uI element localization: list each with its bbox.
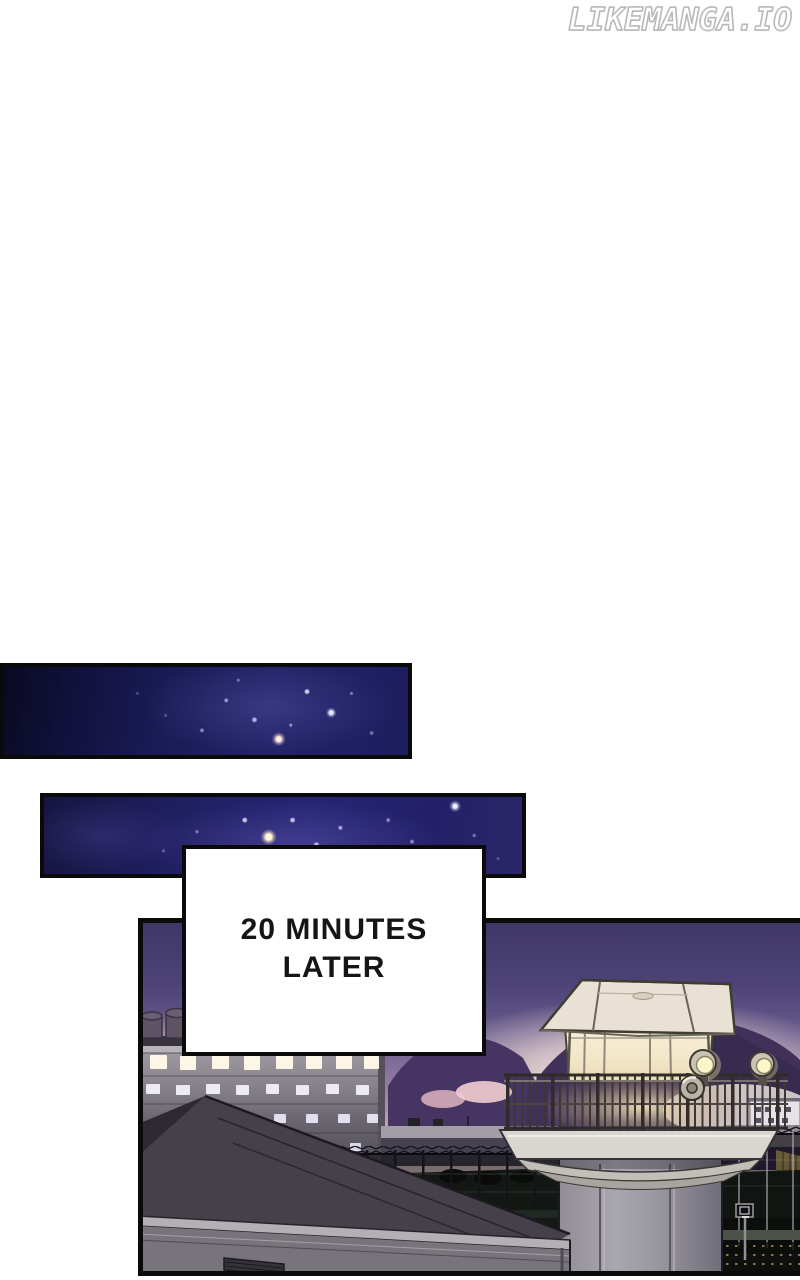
watchtower-railing <box>504 1073 788 1130</box>
caption-text: 20 MINUTES LATER <box>186 849 482 987</box>
site-watermark: LIKEMANGA.IO <box>568 2 792 38</box>
manga-page: LIKEMANGA.IO <box>0 0 800 1280</box>
night-sky-panel-1 <box>0 663 412 759</box>
caption-line-1: 20 MINUTES <box>186 911 482 949</box>
caption-line-2: LATER <box>186 949 482 987</box>
caption-box: 20 MINUTES LATER <box>182 845 486 1056</box>
ring-light <box>680 1076 704 1100</box>
